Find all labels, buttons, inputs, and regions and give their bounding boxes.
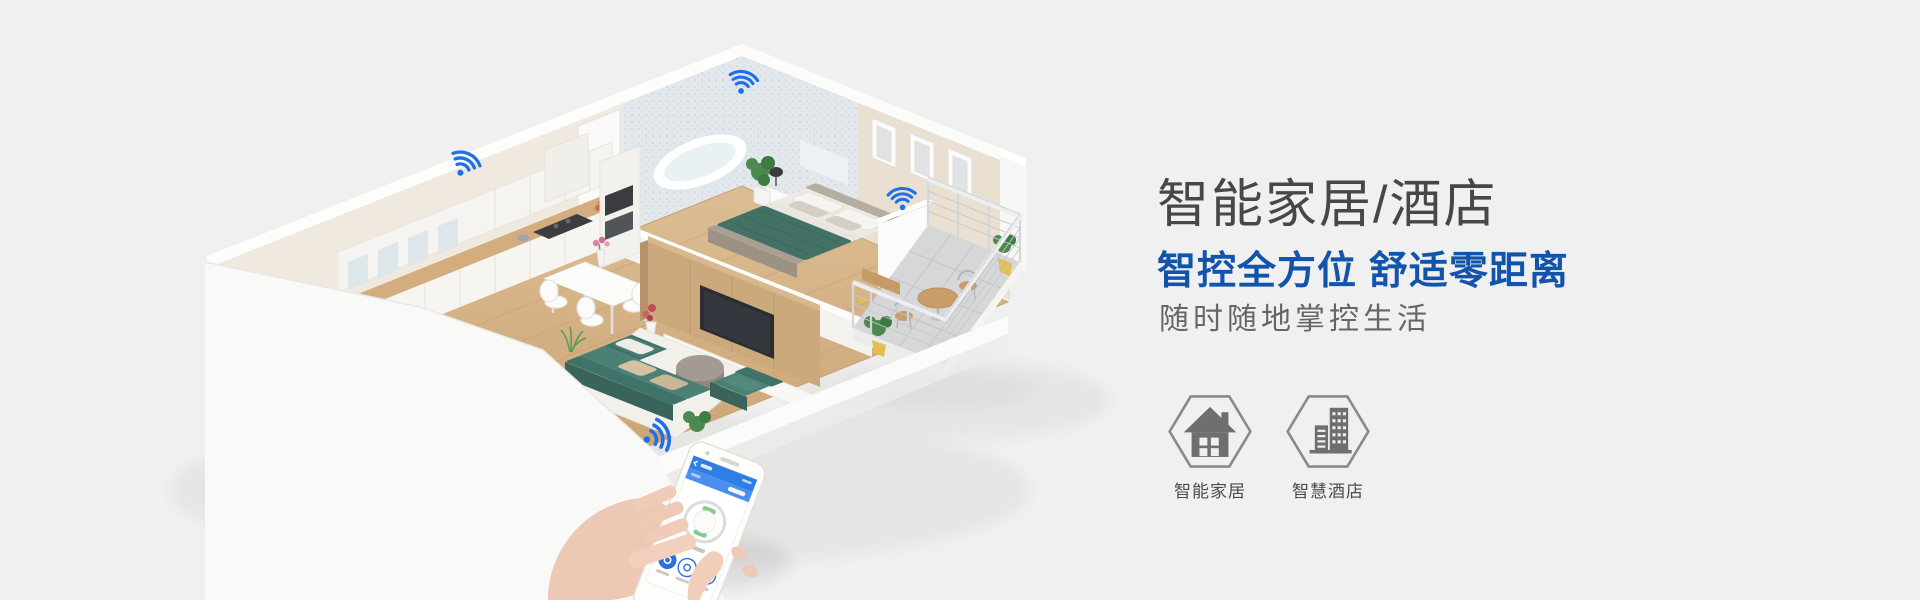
smart-home-illustration bbox=[0, 0, 1920, 600]
hero-subtitle: 智控全方位 舒适零距离 bbox=[1157, 240, 1569, 296]
hero-tagline: 随时随地掌控生活 bbox=[1159, 294, 1431, 338]
feature-list: 智能家居 智慧酒店 bbox=[1166, 392, 1372, 502]
hero-banner: 智能家居/酒店 智控全方位 舒适零距离 随时随地掌控生活 智能家居 bbox=[0, 0, 1920, 600]
feature-label: 智能家居 bbox=[1174, 477, 1246, 502]
feature-smart-hotel[interactable]: 智慧酒店 bbox=[1284, 392, 1372, 502]
hotel-building-icon bbox=[1284, 392, 1372, 471]
feature-smart-home[interactable]: 智能家居 bbox=[1166, 392, 1254, 502]
hero-title: 智能家居/酒店 bbox=[1157, 162, 1497, 237]
feature-label: 智慧酒店 bbox=[1292, 477, 1364, 502]
home-icon bbox=[1166, 392, 1254, 471]
